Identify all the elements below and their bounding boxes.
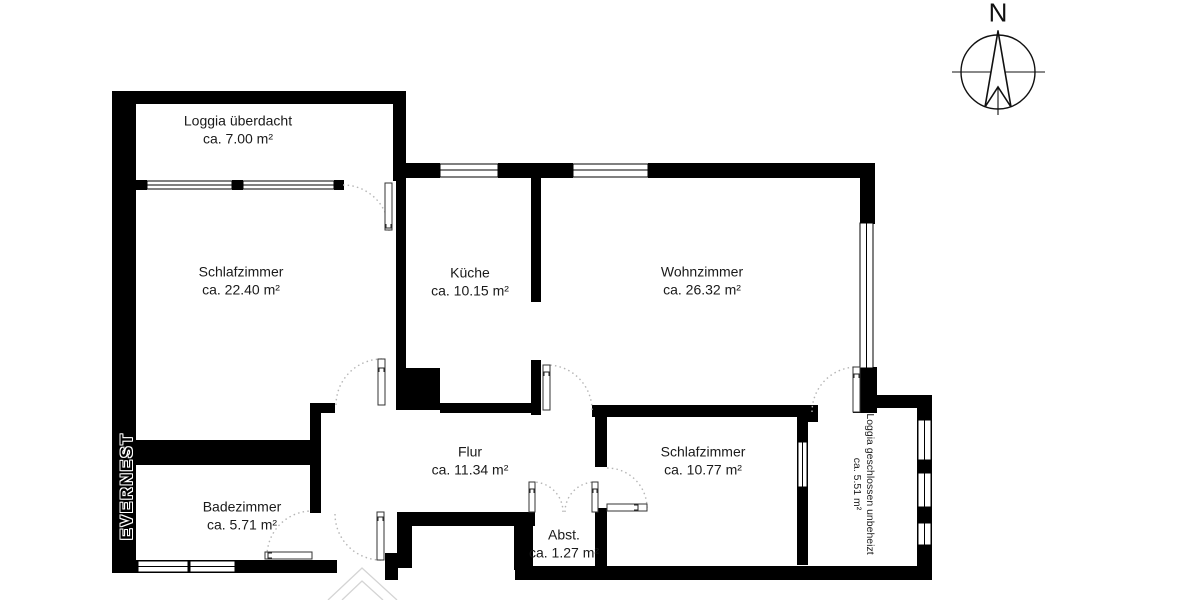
- wall-top-c: [648, 163, 875, 178]
- window-loggia-band-2: [243, 181, 334, 189]
- wall-thick-schlafzimmer-bad: [134, 440, 310, 465]
- room-name: Küche: [431, 265, 509, 283]
- wall-flur-bottom: [397, 512, 535, 526]
- room-name: Schlafzimmer: [199, 264, 284, 282]
- room-area: ca. 26.32 m²: [661, 281, 743, 299]
- mullion-loggia-left: [136, 180, 147, 190]
- room-label-schlafzimmer-klein: Schlafzimmer ca. 10.77 m²: [661, 444, 746, 479]
- room-label-badezimmer: Badezimmer ca. 5.71 m²: [203, 499, 282, 534]
- door-arc-wohnzimmer-left: [547, 365, 592, 410]
- door-arc-schlafzimmer-klein: [607, 468, 647, 508]
- compass-north-label: N: [989, 0, 1008, 29]
- floorplan-page: Loggia überdacht ca. 7.00 m² Schlafzimme…: [0, 0, 1200, 600]
- door-leaf-schlafzimmer-gross: [378, 359, 385, 405]
- window-loggia2-c: [918, 523, 931, 545]
- room-name: Loggia geschlossen unbeheizt: [863, 413, 876, 554]
- room-name: Badezimmer: [203, 499, 282, 517]
- wall-schlafzimmer2-loggia: [797, 417, 808, 565]
- room-name: Abst.: [529, 527, 599, 545]
- window-schlafzimmer2-loggia: [798, 442, 807, 487]
- room-area: ca. 10.15 m²: [431, 282, 509, 300]
- door-leaf-abst-left: [529, 482, 535, 512]
- wall-schlafzimmer2-left-upper: [595, 405, 607, 467]
- wall-entrance-post: [385, 553, 398, 580]
- window-badezimmer-2: [190, 561, 235, 572]
- wall-kueche-wohnzimmer-upper: [531, 178, 541, 302]
- evernest-watermark: EVERNEST: [117, 432, 137, 540]
- door-arc-loggia-ueberdacht: [343, 185, 389, 231]
- wall-top-a: [393, 163, 440, 178]
- room-area: ca. 5.71 m²: [203, 516, 282, 534]
- wall-schlafzimmer2-top: [592, 405, 812, 417]
- room-area: ca. 1.27 m²: [529, 544, 599, 562]
- window-kueche: [440, 164, 498, 177]
- door-arc-wohnzimmer-right: [812, 367, 857, 412]
- room-label-loggia-ueberdacht: Loggia überdacht ca. 7.00 m²: [184, 113, 292, 148]
- window-loggia-band-1: [147, 181, 232, 189]
- room-label-abstellraum: Abst. ca. 1.27 m²: [529, 527, 599, 562]
- door-leaf-schlafzimmer-klein: [607, 504, 647, 511]
- room-label-wohnzimmer: Wohnzimmer ca. 26.32 m²: [661, 264, 743, 299]
- wall-flur-left: [310, 403, 321, 513]
- wall-flur-top-east: [440, 403, 532, 413]
- room-label-flur: Flur ca. 11.34 m²: [432, 444, 509, 479]
- door-leaf-badezimmer: [265, 552, 312, 559]
- wall-schlafzimmer-kueche: [396, 178, 406, 368]
- floorplan-drawing: [0, 0, 1200, 600]
- wall-right-upper: [860, 178, 875, 224]
- mullion-loggia-right: [334, 180, 344, 190]
- door-arc-entrance: [335, 514, 381, 560]
- room-area: ca. 22.40 m²: [199, 281, 284, 299]
- window-wohnzimmer-east: [860, 223, 873, 368]
- wall-loggia-top: [112, 91, 406, 104]
- wall-bottom-right: [515, 566, 932, 580]
- room-label-kueche: Küche ca. 10.15 m²: [431, 265, 509, 300]
- door-arc-abst-left: [533, 482, 563, 512]
- entrance-outside-swing-2: [342, 581, 383, 600]
- room-label-schlafzimmer-gross: Schlafzimmer ca. 22.40 m²: [199, 264, 284, 299]
- door-arc-schlafzimmer-gross: [336, 359, 382, 405]
- room-label-loggia-geschlossen: Loggia geschlossen unbeheizt ca. 5.51 m²: [850, 413, 876, 554]
- door-leaf-abst-right: [592, 482, 598, 512]
- room-area: ca. 11.34 m²: [432, 461, 509, 479]
- room-name: Loggia überdacht: [184, 113, 292, 131]
- wall-duct-block: [396, 368, 440, 410]
- wall-vestibule-right: [397, 512, 412, 568]
- window-wohnzimmer-top: [573, 164, 648, 177]
- window-loggia2-b: [918, 473, 931, 507]
- compass-rose: [952, 30, 1045, 115]
- room-area: ca. 7.00 m²: [184, 130, 292, 148]
- wall-top-b: [498, 163, 573, 178]
- room-name: Flur: [432, 444, 509, 462]
- room-name: Wohnzimmer: [661, 264, 743, 282]
- room-area: ca. 5.51 m²: [850, 413, 863, 554]
- window-badezimmer-1: [138, 561, 188, 572]
- room-area: ca. 10.77 m²: [661, 461, 746, 479]
- window-loggia2-a: [918, 420, 931, 460]
- door-arc-abst-right: [565, 482, 595, 512]
- wall-kueche-wohnzimmer-lower: [531, 360, 541, 415]
- room-name: Schlafzimmer: [661, 444, 746, 462]
- mullion-loggia-mid: [232, 180, 243, 190]
- door-leaf-loggia-ueberdacht: [385, 183, 392, 230]
